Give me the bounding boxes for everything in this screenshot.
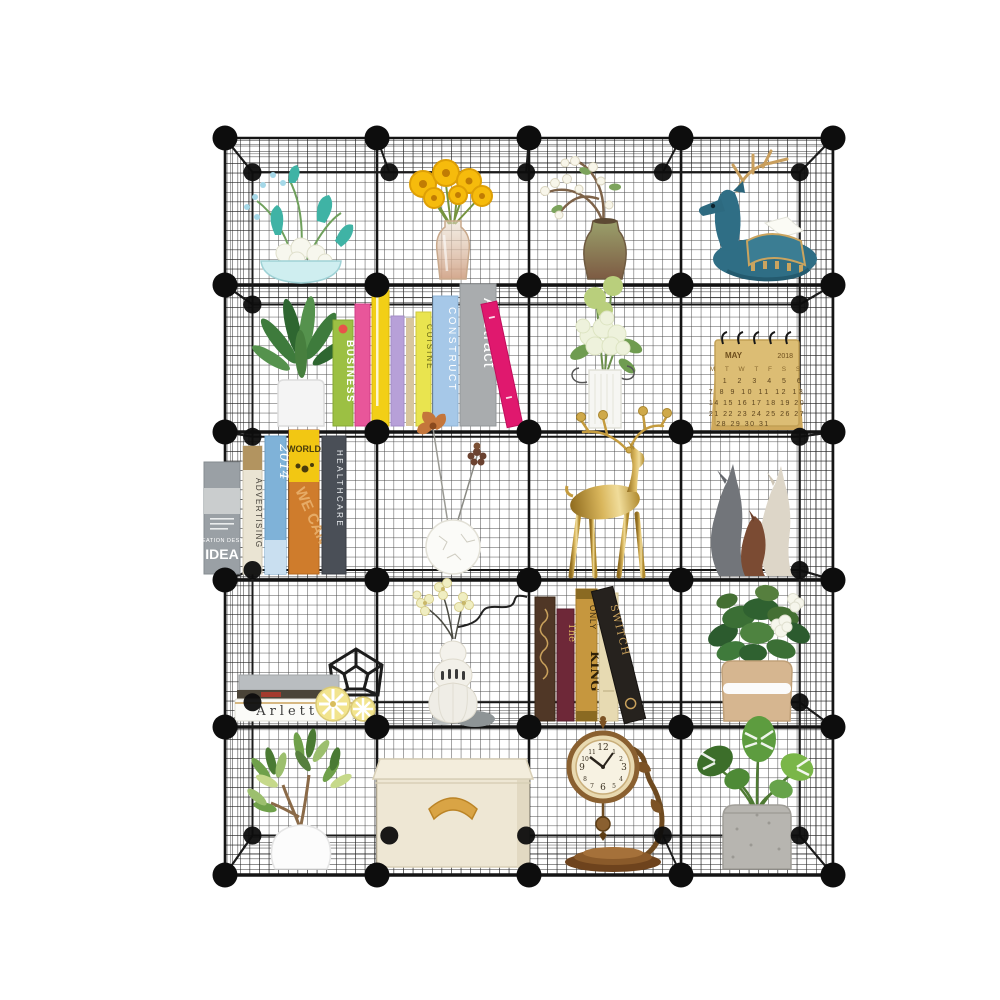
book-spine-world: WORLD (287, 444, 321, 454)
svg-text:7 8 9 10 11 12 13: 7 8 9 10 11 12 13 (709, 389, 805, 396)
desk-calendar: MAY 2018 M T W T F S S 1 2 3 4 5 6 7 8 9… (709, 332, 806, 430)
svg-text:7: 7 (590, 783, 594, 790)
svg-text:14 15 16 17 18 19 20: 14 15 16 17 18 19 20 (709, 400, 805, 407)
svg-text:28 29 30 31: 28 29 30 31 (716, 421, 769, 428)
svg-text:6: 6 (600, 783, 606, 793)
design-book-row: CREATION DESIGN IDEA ADVERTISING 2014 WO… (193, 430, 346, 574)
book-spine-the: The (566, 623, 577, 642)
wire-cube-organizer-photo: BUSINESS CUISINE CONSTRUCT Abstract (0, 0, 1000, 1000)
svg-text:10: 10 (581, 756, 589, 763)
svg-text:1 2 3 4 5 6: 1 2 3 4 5 6 (723, 378, 806, 385)
book-spine-healthcare: HEALTHCARE (335, 450, 344, 528)
product-photo: BUSINESS CUISINE CONSTRUCT Abstract (0, 0, 1000, 1000)
book-spine-idea: IDEA (205, 546, 238, 562)
book-spine-construct: CONSTRUCT (446, 307, 457, 392)
calendar-month: MAY (725, 351, 743, 360)
calendar-weekdays: M T W T F S S (710, 366, 805, 373)
book-spine-advertising: ADVERTISING (254, 478, 263, 549)
svg-text:3: 3 (621, 763, 627, 773)
svg-text:9: 9 (579, 763, 585, 773)
svg-text:5: 5 (612, 783, 616, 790)
svg-text:12: 12 (597, 743, 608, 753)
book-spine-idea-sub: CREATION DESIGN (193, 538, 251, 544)
calendar-year: 2018 (777, 353, 793, 360)
book-spine-business: BUSINESS (344, 340, 355, 403)
svg-text:2: 2 (619, 756, 623, 763)
svg-text:8: 8 (583, 776, 587, 783)
svg-text:11: 11 (588, 749, 596, 756)
svg-text:4: 4 (619, 776, 623, 783)
fabric-storage-box (373, 759, 533, 867)
svg-text:21 22 23 24 25 26 27: 21 22 23 24 25 26 27 (709, 411, 805, 418)
